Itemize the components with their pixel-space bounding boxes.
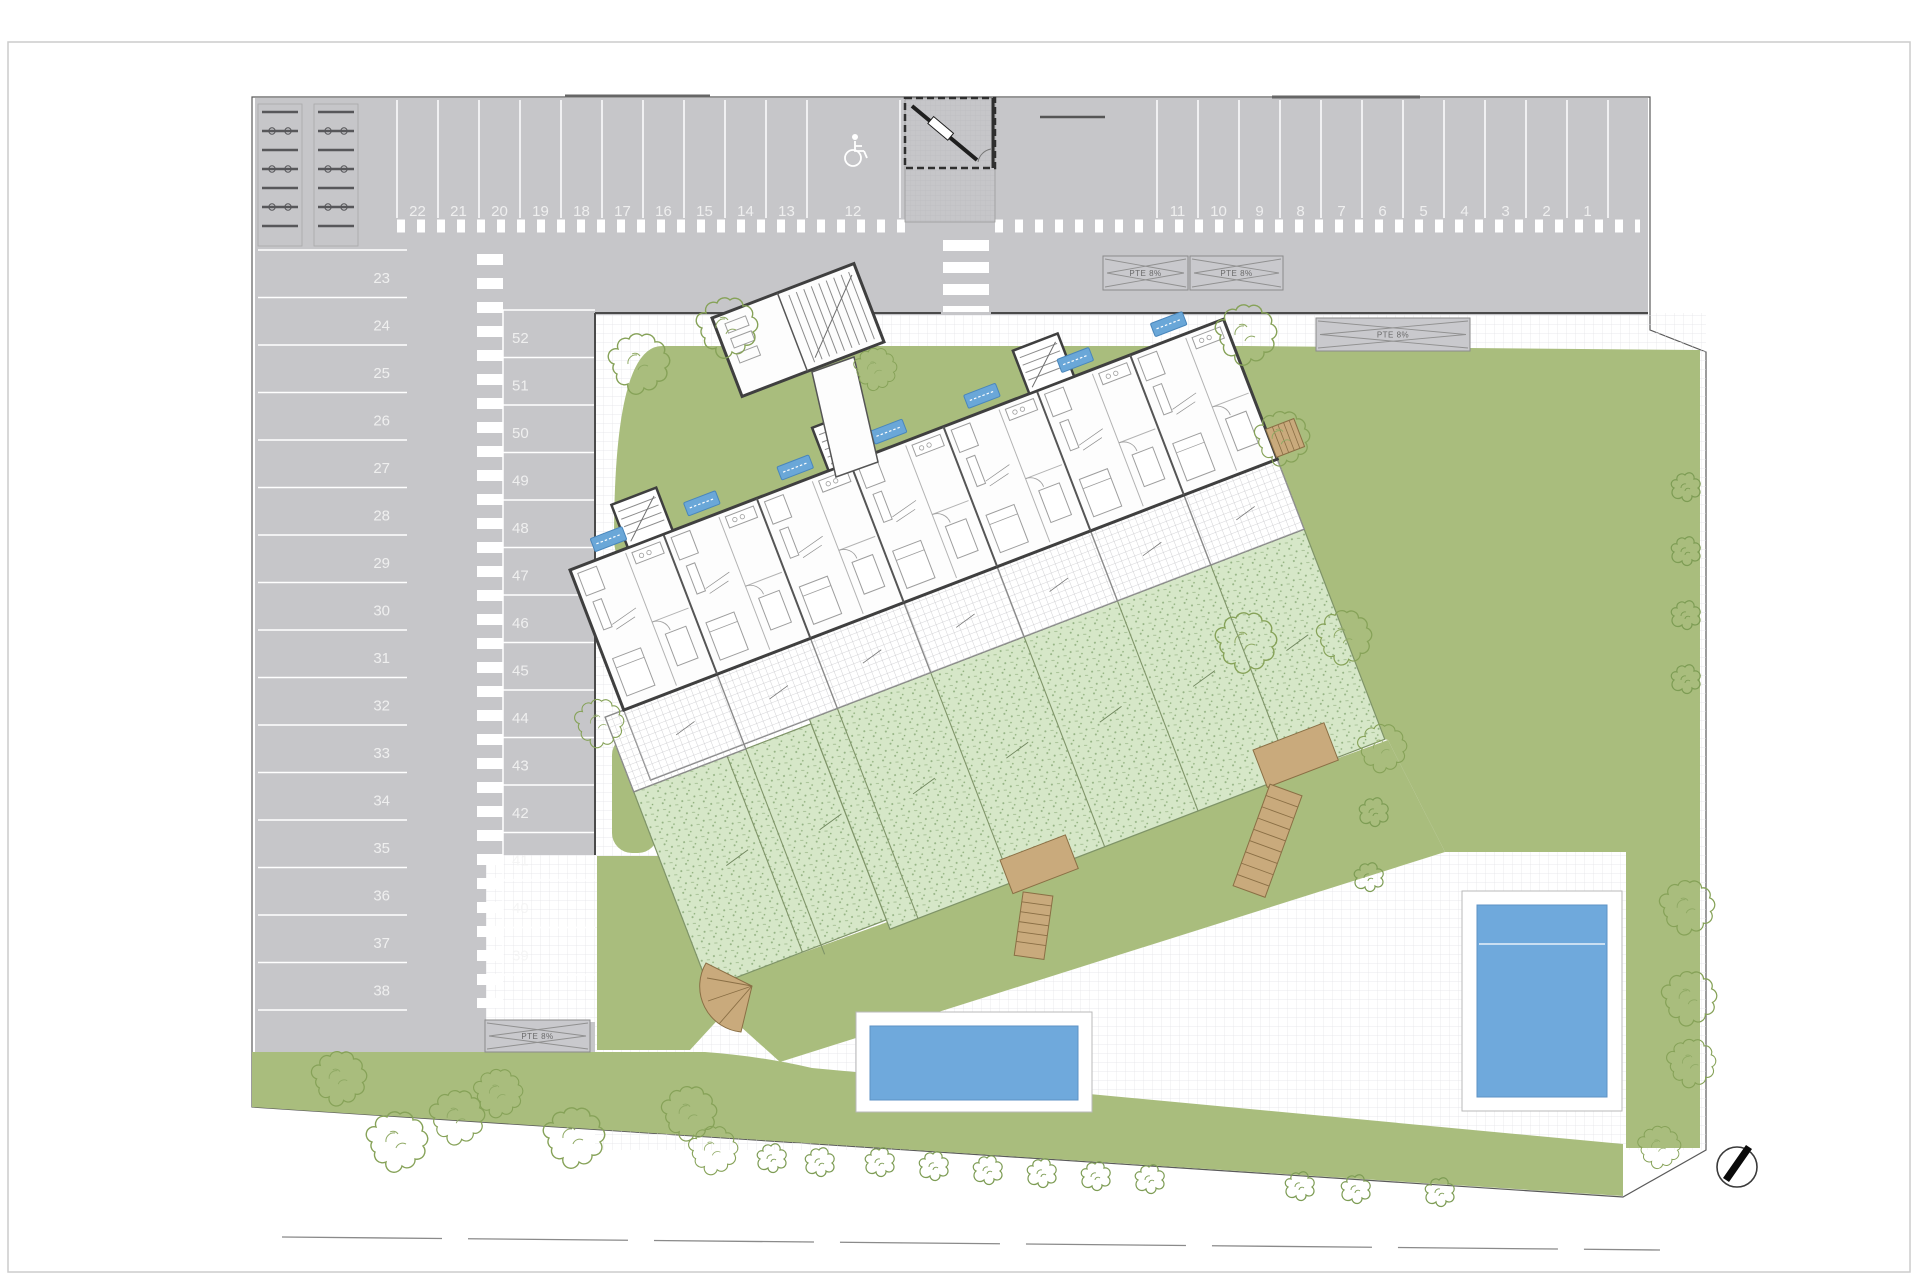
main-pool-water [870,1026,1078,1100]
parking-space-number: 49 [512,473,529,490]
parking-space-number: 46 [512,615,529,632]
parking-space-number: 5 [1419,203,1427,220]
ramp-label: PTE 8% [521,1032,553,1041]
kids-pool [1462,891,1622,1111]
parking-space-number: 30 [373,603,390,620]
parking-space-number: 29 [373,555,390,572]
north-compass [1717,1145,1757,1187]
bush-icon [973,1156,1002,1185]
parking-space-number: 47 [512,568,529,585]
parking-space-number: 4 [1460,203,1468,220]
parking-space-number: 8 [1296,203,1304,220]
bush-icon [1081,1162,1110,1191]
plan-mark [852,134,858,140]
ramp-label: PTE 8% [1377,331,1409,340]
parking-space-number: 14 [737,203,754,220]
parking-space-number: 51 [512,378,529,395]
parking-space-number: 34 [373,793,390,810]
road-edge-line [282,1237,1660,1250]
parking-space-number: 45 [512,663,529,680]
kids-pool-water [1477,905,1607,1097]
parking-space-number: 22 [409,203,426,220]
parking-space-number: 36 [373,888,390,905]
ramp: PTE 8% [485,1020,590,1052]
parking-space-number: 25 [373,365,390,382]
parking-space-number: 15 [696,203,713,220]
tree-icon [366,1112,428,1172]
parking-space-number: 40 [512,900,529,917]
parking-space-number: 7 [1337,203,1345,220]
parking-space-number: 41 [512,853,529,870]
site-plan-page: 2221201918171615141312111098765432123242… [0,0,1920,1280]
bush-icon [1135,1165,1164,1194]
parking-space-number: 2 [1542,203,1550,220]
parking-space-number: 23 [373,270,390,287]
ramp: PTE 8% [1103,256,1188,290]
parking-space-number: 16 [655,203,672,220]
parking-space-number: 43 [512,758,529,775]
site-plan: 2221201918171615141312111098765432123242… [0,0,1920,1280]
parking-space-number: 50 [512,425,529,442]
parking-space-number: 39 [512,948,529,965]
parking-space-number: 38 [373,983,390,1000]
parking-space-number: 28 [373,508,390,525]
ramp-label: PTE 8% [1220,269,1252,278]
parking-space-number: 37 [373,935,390,952]
parking-space-number: 44 [512,710,529,727]
parking-space-number: 10 [1210,203,1227,220]
parking-space-number: 26 [373,413,390,430]
parking-space-number: 31 [373,650,390,667]
parking-space-number: 48 [512,520,529,537]
parking-space-number: 42 [512,805,529,822]
gatehouse [905,98,995,222]
bush-icon [865,1148,894,1177]
bush-icon [805,1148,834,1177]
ramp-label: PTE 8% [1129,269,1161,278]
parking-space-number: 6 [1378,203,1386,220]
parking-space-number: 35 [373,840,390,857]
bush-icon [1027,1159,1056,1188]
parking-space-number: 33 [373,745,390,762]
parking-space-number: 32 [373,698,390,715]
parking-space-number: 11 [1170,203,1186,220]
parking-space-number: 3 [1501,203,1509,220]
parking-space-number: 20 [491,203,508,220]
ramp: PTE 8% [1316,318,1470,351]
parking-space-number: 21 [450,203,467,220]
parking-space-number: 1 [1583,203,1591,220]
parking-space-number: 18 [573,203,590,220]
parking-space-number: 52 [512,330,529,347]
parking-space-number: 27 [373,460,390,477]
main-pool [856,1012,1092,1112]
ramp: PTE 8% [1190,256,1283,290]
bush-icon [919,1152,948,1181]
parking-space-number: 24 [373,318,390,335]
parking-space-number: 13 [778,203,795,220]
parking-space-number: 19 [532,203,549,220]
parking-space-number: 9 [1255,203,1263,220]
parking-space-number: 17 [614,203,631,220]
parking-space-number: 12 [845,203,862,220]
